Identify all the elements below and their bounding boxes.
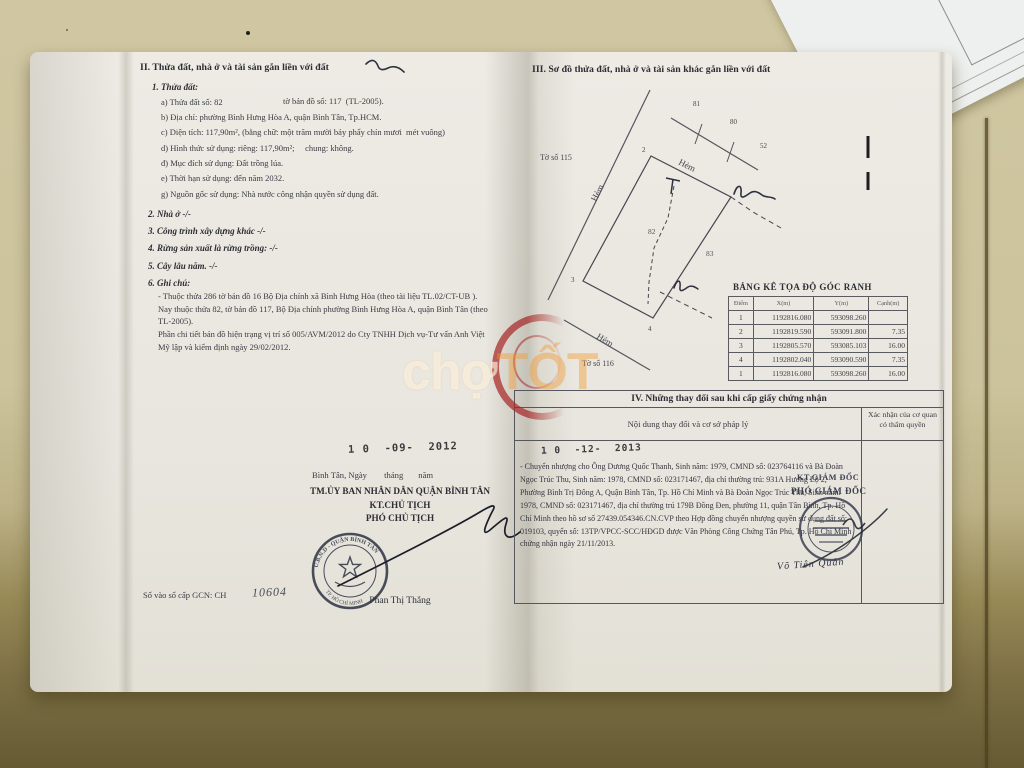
photo-background: II. Thửa đất, nhà ở và tài sản gắn liền … (0, 0, 1024, 768)
pen-scribble-ne (734, 186, 775, 199)
cell-diem: 2 (729, 325, 754, 339)
cell-y: 593090.590 (814, 353, 869, 367)
book-number-label: Số vào sổ cấp GCN: CH (143, 590, 226, 600)
chotot-watermark: chợTỐT (402, 342, 598, 402)
corner-2-label: 2 (642, 146, 646, 154)
coord-row: 1 1192816.080 593098.260 16.00 (729, 367, 908, 381)
cell-diem: 1 (729, 367, 754, 381)
field-address: b) Địa chỉ: phường Bình Hưng Hòa A, quận… (161, 112, 381, 122)
dashed-boundary-internal (648, 186, 674, 304)
book-number-handwritten: 10604 (252, 584, 287, 600)
cell-x: 1192816.080 (753, 367, 813, 381)
field-parcel-number: a) Thửa đất số: 82 (161, 97, 223, 107)
field-area: c) Diện tích: 117,90m², (bằng chữ: một t… (161, 127, 445, 137)
signer-name: Phan Thị Thắng (280, 595, 520, 607)
dust-speck (66, 29, 68, 31)
dashed-boundary-ne (731, 197, 781, 228)
pen-scribble-se (674, 281, 698, 290)
section2-sub3: 3. Công trình xây dựng khác -/- (148, 226, 266, 237)
section2-sub4: 4. Rừng sản xuất là rừng trồng: -/- (148, 243, 278, 254)
col-header-canh: Cạnh(m) (869, 297, 908, 311)
cell-diem: 3 (729, 339, 754, 353)
pen-tee-mark (666, 178, 680, 194)
watermark-tot: TỐT (497, 343, 598, 401)
section2-sub6: 6. Ghi chú: (148, 278, 190, 289)
cell-canh: 7.35 (869, 353, 908, 367)
dust-speck (246, 31, 250, 35)
parcel-82-label: 82 (648, 227, 656, 236)
watermark-cho: chợ (402, 343, 497, 401)
field-use-purpose: đ) Mục đích sử dụng: Đất trồng lúa. (161, 158, 283, 168)
corner-3-label: 3 (571, 276, 575, 284)
cell-x: 1192819.590 (753, 325, 813, 339)
cell-y: 593091.800 (814, 325, 869, 339)
cell-y: 593085.103 (814, 339, 869, 353)
page-edge-shadow (30, 52, 120, 692)
chairman-signature (330, 490, 530, 600)
col-header-y: Y(m) (814, 297, 869, 311)
section2-heading: II. Thửa đất, nhà ở và tài sản gắn liền … (140, 62, 329, 74)
date-change-stamp: 1 0 -12- 2013 (541, 442, 642, 457)
desk-seam-line (985, 118, 988, 768)
pen-scribble-top (362, 56, 412, 80)
parcel-polygon (583, 156, 731, 318)
field-use-origin: g) Nguồn gốc sử dụng: Nhà nước công nhận… (161, 189, 379, 199)
section4-body-row: 1 0 -12- 2013 - Chuyển nhượng cho Ông Dư… (515, 441, 943, 604)
col-header-diem: Điểm (729, 297, 754, 311)
coord-row: 1 1192816.080 593098.260 (729, 311, 908, 325)
col-header-x: X(m) (753, 297, 813, 311)
cell-y: 593098.260 (814, 367, 869, 381)
place-date-line: Bình Tân, Ngày tháng năm (312, 470, 433, 480)
cell-x: 1192805.570 (753, 339, 813, 353)
corner-4-label: 4 (648, 325, 652, 333)
section4-col2-header: Xác nhận của cơ quan có thẩm quyền (862, 408, 943, 440)
date-received-stamp: 1 0 -09- 2012 (348, 440, 458, 456)
section2-sub1-title: 1. Thửa đất: (152, 82, 198, 93)
map-sheet-115-label: Tờ số 115 (540, 153, 572, 162)
cell-x: 1192802.040 (753, 353, 813, 367)
note-paragraph-1: - Thuộc thửa 286 tờ bản đồ 16 Bộ Địa chí… (158, 290, 493, 328)
cell-canh: 16.00 (869, 367, 908, 381)
section3-heading: III. Sơ đồ thửa đất, nhà ở và tài sản kh… (532, 64, 770, 76)
field-map-sheet: tờ bản đồ số: 117 (TL-2005). (283, 96, 384, 106)
section4-subheader-row: Nội dung thay đổi và cơ sở pháp lý Xác n… (515, 408, 943, 441)
section2-sub5: 5. Cây lâu năm. -/- (148, 261, 218, 272)
cell-diem: 1 (729, 311, 754, 325)
parcel-83-label: 83 (706, 249, 714, 258)
coord-row: 2 1192819.590 593091.800 7.35 (729, 325, 908, 339)
road-tick (695, 124, 702, 144)
parcel-81-label: 81 (693, 100, 701, 108)
cell-canh: 16.00 (869, 339, 908, 353)
cell-diem: 4 (729, 353, 754, 367)
coord-table-header-row: Điểm X(m) Y(m) Cạnh(m) (729, 297, 908, 311)
cell-x: 1192816.080 (753, 311, 813, 325)
parcel-52-label: 52 (760, 142, 768, 150)
section4-table: IV. Những thay đổi sau khi cấp giấy chứn… (514, 390, 944, 604)
cell-canh (869, 311, 908, 325)
coord-row: 3 1192805.570 593085.103 16.00 (729, 339, 908, 353)
parcel-80-label: 80 (730, 118, 738, 126)
coord-table: Điểm X(m) Y(m) Cạnh(m) 1 1192816.080 593… (728, 296, 908, 381)
cell-y: 593098.260 (814, 311, 869, 325)
cell-canh: 7.35 (869, 325, 908, 339)
field-use-term: e) Thời hạn sử dụng: đến năm 2032. (161, 173, 284, 183)
coord-table-title: BẢNG KÊ TỌA ĐỘ GÓC RANH (733, 282, 872, 293)
field-use-form: d) Hình thức sử dụng: riêng: 117,90m²; c… (161, 143, 354, 153)
page-crease (118, 52, 134, 692)
document-spread: II. Thửa đất, nhà ở và tài sản gắn liền … (30, 52, 952, 692)
coord-row: 4 1192802.040 593090.590 7.35 (729, 353, 908, 367)
section2-sub2: 2. Nhà ở -/- (148, 209, 191, 220)
